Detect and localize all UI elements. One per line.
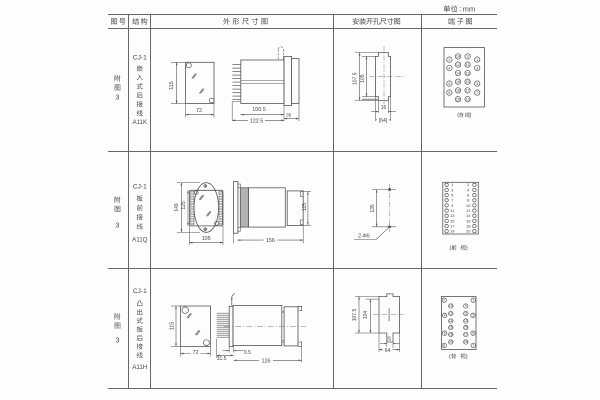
svg-text:4: 4 xyxy=(448,66,450,70)
svg-text:35: 35 xyxy=(286,113,292,119)
svg-text::: : xyxy=(460,4,462,13)
svg-text:): ) xyxy=(466,245,468,251)
svg-text:2: 2 xyxy=(443,298,445,302)
svg-text:105: 105 xyxy=(360,74,366,83)
svg-text:9: 9 xyxy=(465,304,467,308)
svg-text:15: 15 xyxy=(464,326,468,330)
svg-text:9.5: 9.5 xyxy=(244,350,251,356)
svg-text:A11H: A11H xyxy=(132,364,147,371)
svg-text:19: 19 xyxy=(450,229,455,234)
svg-text:3: 3 xyxy=(476,66,478,70)
svg-text:A11K: A11K xyxy=(132,119,148,126)
svg-text:19: 19 xyxy=(466,98,470,102)
svg-text:19: 19 xyxy=(464,340,468,344)
svg-text:12: 12 xyxy=(456,63,460,67)
svg-text:122.5: 122.5 xyxy=(250,118,264,124)
svg-text:105: 105 xyxy=(202,236,211,242)
svg-text:20: 20 xyxy=(466,229,471,234)
svg-text:18: 18 xyxy=(456,89,460,93)
svg-text:3: 3 xyxy=(472,313,474,317)
svg-text:6: 6 xyxy=(444,331,446,335)
svg-text:CJ-1: CJ-1 xyxy=(133,55,147,62)
svg-text:18: 18 xyxy=(449,333,453,337)
svg-text:126: 126 xyxy=(262,358,271,364)
svg-text:1: 1 xyxy=(472,298,474,302)
svg-text:115: 115 xyxy=(169,81,175,90)
svg-text:(: ( xyxy=(449,354,451,360)
svg-text:100.5: 100.5 xyxy=(252,107,266,113)
svg-text:11: 11 xyxy=(464,312,468,316)
svg-text:64: 64 xyxy=(385,348,391,354)
svg-text:16: 16 xyxy=(449,326,453,330)
svg-text:(: ( xyxy=(457,113,459,119)
svg-text:156: 156 xyxy=(266,238,275,244)
svg-text:20: 20 xyxy=(456,98,460,102)
svg-text:16: 16 xyxy=(456,80,460,84)
svg-text:3: 3 xyxy=(116,223,120,230)
svg-text:104: 104 xyxy=(363,311,369,320)
svg-text:): ) xyxy=(466,354,468,360)
svg-text:149: 149 xyxy=(174,203,180,212)
svg-text:8: 8 xyxy=(448,91,450,95)
svg-text:31.5: 31.5 xyxy=(217,356,227,362)
svg-text:5: 5 xyxy=(472,331,474,335)
svg-text:15: 15 xyxy=(466,80,470,84)
svg-text:8: 8 xyxy=(443,344,445,348)
svg-text:107.5: 107.5 xyxy=(352,309,358,322)
svg-text:10: 10 xyxy=(456,55,460,59)
svg-text:mm: mm xyxy=(463,4,475,13)
svg-text:14: 14 xyxy=(449,319,453,323)
svg-text:11: 11 xyxy=(466,63,470,67)
svg-text:17: 17 xyxy=(464,333,468,337)
svg-text:A11Q: A11Q xyxy=(132,237,148,244)
svg-text:3: 3 xyxy=(116,337,120,344)
svg-text:CJ-1: CJ-1 xyxy=(133,184,147,191)
svg-text:17: 17 xyxy=(466,89,470,93)
svg-text:16: 16 xyxy=(381,105,387,111)
svg-text:4: 4 xyxy=(444,313,446,317)
svg-text:(: ( xyxy=(449,245,451,251)
svg-text:72: 72 xyxy=(196,108,202,114)
svg-text:1: 1 xyxy=(476,58,478,62)
svg-text:135: 135 xyxy=(370,204,376,213)
svg-text:2: 2 xyxy=(448,58,450,62)
svg-text:13: 13 xyxy=(466,71,470,75)
svg-text:72: 72 xyxy=(193,350,199,356)
svg-text:16: 16 xyxy=(387,336,392,342)
svg-text:12: 12 xyxy=(449,312,453,316)
svg-text:6: 6 xyxy=(448,82,450,86)
svg-text:CJ-1: CJ-1 xyxy=(133,288,147,295)
svg-text:9: 9 xyxy=(467,55,469,59)
svg-text:20: 20 xyxy=(449,340,453,344)
svg-text:125: 125 xyxy=(181,201,187,210)
svg-text:115: 115 xyxy=(170,322,176,331)
svg-text:3: 3 xyxy=(116,94,120,101)
svg-text:115: 115 xyxy=(302,203,308,211)
svg-text:10: 10 xyxy=(449,304,453,308)
svg-text:107.5: 107.5 xyxy=(352,72,358,85)
svg-text:14: 14 xyxy=(456,71,460,75)
svg-text:): ) xyxy=(470,113,472,119)
svg-text:13: 13 xyxy=(464,319,468,323)
svg-text:2-Φ5: 2-Φ5 xyxy=(358,233,370,239)
svg-text:7: 7 xyxy=(472,344,474,348)
svg-text:5: 5 xyxy=(476,82,478,86)
svg-text:[64]: [64] xyxy=(379,118,388,124)
svg-text:7: 7 xyxy=(476,91,478,95)
